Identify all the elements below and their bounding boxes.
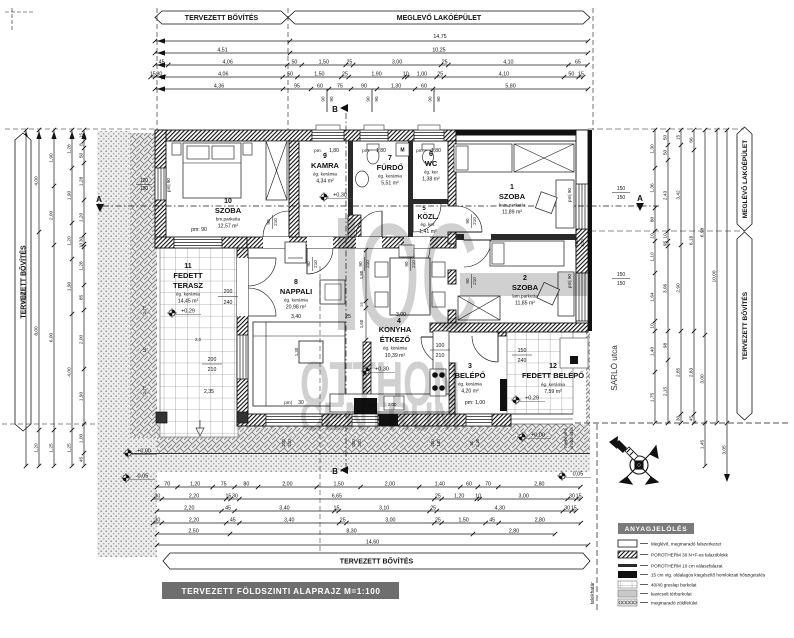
svg-text:30: 30: [569, 494, 575, 500]
svg-text:14,60: 14,60: [366, 540, 379, 546]
svg-text:2,80: 2,80: [509, 529, 519, 535]
svg-text:TERVEZETT BŐVÍTÉS: TERVEZETT BŐVÍTÉS: [185, 13, 259, 22]
svg-text:130: 130: [140, 186, 149, 192]
svg-text:10,00: 10,00: [20, 292, 26, 304]
svg-text:1,75: 1,75: [649, 393, 655, 403]
svg-text:CENTRUM: CENTRUM: [300, 395, 460, 439]
svg-text:1,90: 1,90: [78, 392, 84, 402]
svg-text:POROTHERM 30 N+F-es falazóblok: POROTHERM 30 N+F-es falazóblokk: [651, 553, 729, 558]
svg-text:60: 60: [317, 84, 323, 90]
svg-text:kavicsolt térburkolat: kavicsolt térburkolat: [651, 592, 692, 597]
svg-text:+0,29: +0,29: [525, 396, 539, 402]
svg-text:4,10: 4,10: [503, 60, 513, 66]
svg-text:1: 1: [510, 184, 514, 191]
svg-text:ANYAGJELÖLÉS: ANYAGJELÖLÉS: [625, 524, 688, 533]
svg-text:15: 15: [578, 72, 584, 78]
svg-text:ég. kerámia: ég. kerámia: [541, 382, 565, 387]
svg-text:ég. kerámia: ég. kerámia: [284, 298, 308, 303]
svg-text:1,28: 1,28: [78, 261, 84, 271]
svg-text:TERASZ: TERASZ: [173, 281, 203, 290]
svg-text:2,83: 2,83: [688, 368, 694, 378]
svg-text:+0,00: +0,00: [137, 449, 151, 455]
svg-text:vmiba adva: vmiba adva: [569, 427, 574, 449]
svg-text:50: 50: [568, 72, 574, 78]
svg-text:10: 10: [78, 243, 84, 249]
svg-text:1,20: 1,20: [66, 236, 72, 246]
svg-text:25: 25: [342, 72, 348, 78]
svg-text:3,40: 3,40: [284, 518, 294, 524]
svg-text:1,90: 1,90: [371, 72, 381, 78]
svg-text:FEDETT: FEDETT: [173, 271, 203, 280]
svg-text:25: 25: [340, 518, 346, 524]
svg-text:90: 90: [436, 96, 441, 102]
svg-text:A: A: [96, 195, 102, 204]
svg-text:140: 140: [436, 439, 441, 447]
svg-text:45: 45: [225, 506, 231, 512]
svg-text:65: 65: [575, 60, 581, 66]
svg-text:30: 30: [232, 494, 238, 500]
svg-text:-0,05: -0,05: [136, 474, 149, 480]
svg-text:15: 15: [225, 494, 231, 500]
svg-text:TERVEZETT FÖLDSZINTI ALAPRAJ: TERVEZETT FÖLDSZINTI ALAPRAJZ M=1:100: [182, 586, 381, 596]
svg-text:210: 210: [313, 260, 318, 268]
svg-text:2,20: 2,20: [189, 518, 199, 524]
svg-text:1,28: 1,28: [78, 177, 84, 187]
svg-text:60: 60: [469, 440, 474, 445]
svg-text:1,90: 1,90: [66, 282, 72, 292]
svg-text:B: B: [332, 467, 338, 476]
svg-text:NAPPALI: NAPPALI: [280, 287, 312, 296]
svg-text:1,28: 1,28: [66, 144, 72, 154]
svg-text:pm: 1,00: pm: 1,00: [465, 400, 485, 406]
svg-text:meglévő-5: meglévő-5: [563, 428, 568, 448]
svg-text:50: 50: [662, 135, 668, 141]
svg-text:0,05: 0,05: [573, 472, 584, 478]
svg-text:9: 9: [323, 153, 327, 160]
svg-text:2,80: 2,80: [534, 482, 544, 488]
svg-text:3,00: 3,00: [699, 374, 705, 384]
svg-text:80: 80: [243, 482, 249, 488]
svg-text:1,80: 1,80: [329, 148, 339, 154]
svg-text:210: 210: [273, 218, 278, 226]
svg-text:25: 25: [435, 494, 441, 500]
svg-text:90: 90: [266, 219, 271, 225]
svg-text:1,25: 1,25: [66, 443, 72, 453]
svg-text:3,40: 3,40: [291, 314, 301, 320]
svg-text:95: 95: [294, 84, 300, 90]
svg-text:6,98: 6,98: [699, 228, 705, 238]
svg-text:2,20: 2,20: [184, 506, 194, 512]
svg-text:bm.parketta: bm.parketta: [216, 217, 241, 222]
svg-text:1,50: 1,50: [314, 72, 324, 78]
svg-text:ég. kerámia: ég. kerámia: [313, 172, 337, 177]
svg-text:1,20: 1,20: [190, 482, 200, 488]
svg-text:1,00: 1,00: [417, 72, 427, 78]
svg-text:pm| 90: pm| 90: [166, 178, 171, 192]
svg-text:+0,30: +0,30: [333, 193, 347, 199]
svg-text:3,40: 3,40: [279, 506, 289, 512]
svg-text:3,06: 3,06: [662, 284, 668, 294]
svg-text:2,00: 2,00: [385, 482, 395, 488]
svg-text:40/40 greslap burkolat: 40/40 greslap burkolat: [651, 583, 697, 588]
svg-text:30: 30: [564, 506, 570, 512]
svg-text:1,25: 1,25: [48, 443, 54, 453]
svg-text:80: 80: [649, 217, 655, 223]
svg-text:pm:: pm:: [314, 148, 322, 153]
svg-text:2,77: 2,77: [142, 305, 147, 314]
svg-text:10: 10: [403, 72, 409, 78]
svg-text:megmaradó zöldfelület: megmaradó zöldfelület: [651, 601, 698, 606]
svg-text:30: 30: [675, 416, 681, 422]
svg-text:15: 15: [571, 506, 577, 512]
svg-text:90: 90: [321, 96, 326, 102]
svg-text:200: 200: [224, 289, 233, 295]
svg-text:1,50: 1,50: [458, 518, 468, 524]
svg-text:1,20: 1,20: [78, 213, 84, 223]
svg-text:10: 10: [649, 233, 655, 239]
svg-text:M: M: [400, 148, 404, 154]
svg-text:11: 11: [184, 263, 192, 270]
svg-text:pm:: pm:: [416, 148, 424, 153]
svg-text:5,80: 5,80: [505, 84, 515, 90]
svg-text:1,40: 1,40: [475, 438, 480, 447]
svg-text:2,15: 2,15: [662, 387, 668, 397]
svg-text:3,10: 3,10: [379, 506, 389, 512]
svg-text:90: 90: [428, 96, 433, 102]
svg-text:210: 210: [208, 367, 217, 373]
svg-text:2,80: 2,80: [535, 518, 545, 524]
svg-text:telekhatár: telekhatár: [590, 582, 596, 604]
svg-text:45: 45: [489, 518, 495, 524]
svg-text:3,05: 3,05: [721, 445, 727, 455]
svg-text:4,36: 4,36: [214, 84, 224, 90]
svg-text:12: 12: [549, 363, 557, 370]
svg-text:2,77: 2,77: [142, 385, 147, 394]
svg-text:90: 90: [374, 96, 379, 102]
svg-text:1,50: 1,50: [333, 482, 343, 488]
svg-text:1,45: 1,45: [699, 440, 705, 450]
svg-text:2,00: 2,00: [78, 335, 84, 345]
svg-text:7: 7: [388, 155, 392, 162]
svg-text:85: 85: [78, 295, 84, 301]
svg-text:150: 150: [617, 281, 626, 287]
svg-text:1,40: 1,40: [649, 347, 655, 357]
svg-text:90: 90: [361, 84, 367, 90]
svg-text:15: 15: [576, 494, 582, 500]
svg-text:SZOBA: SZOBA: [215, 206, 242, 215]
svg-text:pm:: pm:: [362, 148, 370, 153]
svg-text:50: 50: [662, 150, 668, 156]
svg-text:15: 15: [675, 135, 681, 141]
svg-text:pm|: pm|: [284, 400, 292, 405]
svg-text:30: 30: [78, 237, 84, 243]
svg-text:ég. kerámia: ég. kerámia: [458, 382, 482, 387]
svg-text:+0,29: +0,29: [181, 309, 195, 315]
svg-text:98: 98: [662, 343, 668, 349]
svg-text:200: 200: [430, 439, 435, 447]
svg-text:2,43: 2,43: [662, 191, 668, 201]
svg-text:3,00: 3,00: [518, 494, 528, 500]
svg-text:15: 15: [78, 133, 84, 139]
svg-text:6,18: 6,18: [688, 236, 694, 246]
svg-text:SZOBA: SZOBA: [499, 192, 526, 201]
svg-text:25: 25: [435, 518, 441, 524]
svg-text:MEGLEVŐ LAKÓÉPÜLET: MEGLEVŐ LAKÓÉPÜLET: [397, 13, 482, 22]
svg-text:30: 30: [154, 494, 160, 500]
svg-text:70: 70: [164, 482, 170, 488]
svg-text:4,34 m²: 4,34 m²: [316, 179, 334, 185]
svg-text:10: 10: [649, 323, 655, 329]
svg-text:1,40: 1,40: [435, 482, 445, 488]
svg-text:1,30: 1,30: [294, 347, 299, 356]
svg-text:8,30: 8,30: [346, 529, 356, 535]
svg-text:15: 15: [334, 506, 340, 512]
svg-text:45: 45: [688, 416, 694, 422]
svg-text:12,57 m²: 12,57 m²: [218, 224, 239, 230]
svg-text:10: 10: [142, 347, 147, 352]
svg-text:1,90: 1,90: [66, 191, 72, 201]
svg-text:25: 25: [346, 60, 352, 66]
svg-text:2,20: 2,20: [189, 494, 199, 500]
svg-text:150: 150: [617, 186, 626, 192]
svg-text:10: 10: [224, 198, 232, 205]
svg-text:1,80: 1,80: [376, 148, 386, 154]
svg-text:ég. ker: ég. ker: [424, 170, 439, 175]
svg-text:4,06: 4,06: [218, 72, 228, 78]
svg-text:240: 240: [518, 358, 527, 364]
svg-text:WC: WC: [425, 159, 438, 168]
svg-text:3,00: 3,00: [385, 518, 395, 524]
svg-text:2,50: 2,50: [188, 529, 198, 535]
svg-text:A: A: [637, 194, 643, 203]
svg-text:240: 240: [224, 300, 233, 306]
svg-text:3,00: 3,00: [392, 60, 402, 66]
svg-text:25: 25: [437, 72, 443, 78]
svg-text:ég. kerámia: ég. kerámia: [176, 292, 200, 297]
svg-text:90: 90: [366, 96, 371, 102]
svg-text:1,36: 1,36: [649, 183, 655, 193]
svg-text:4,00: 4,00: [33, 176, 39, 186]
svg-text:4,20 m²: 4,20 m²: [461, 389, 479, 395]
svg-text:200: 200: [208, 357, 217, 363]
svg-text:90: 90: [329, 96, 334, 102]
svg-text:11,89 m²: 11,89 m²: [502, 210, 522, 216]
svg-text:210: 210: [580, 239, 585, 247]
svg-text:90: 90: [306, 261, 311, 267]
svg-text:+0,00: +0,00: [531, 433, 545, 439]
svg-text:66: 66: [688, 137, 694, 143]
svg-text:4,10: 4,10: [499, 72, 509, 78]
svg-text:15 cm vtg. oldalagos kiegészít: 15 cm vtg. oldalagos kiegészítő homlokza…: [651, 573, 766, 578]
svg-text:25: 25: [442, 60, 448, 66]
svg-text:ég. kerámia: ég. kerámia: [378, 174, 402, 179]
svg-text:70: 70: [485, 482, 491, 488]
svg-text:14,75: 14,75: [433, 34, 446, 40]
svg-text:14,45 m²: 14,45 m²: [178, 299, 199, 305]
svg-text:8: 8: [294, 279, 298, 286]
svg-text:50: 50: [78, 153, 84, 159]
svg-text:3: 3: [468, 363, 472, 370]
svg-text:2,00: 2,00: [48, 211, 54, 221]
svg-text:10,25: 10,25: [432, 48, 445, 54]
svg-text:6,65: 6,65: [332, 494, 342, 500]
svg-text:1,64: 1,64: [649, 292, 655, 302]
svg-text:20,98 m²: 20,98 m²: [286, 305, 307, 311]
svg-text:50: 50: [291, 60, 297, 66]
svg-text:1,30: 1,30: [391, 84, 401, 90]
svg-text:200: 200: [281, 439, 286, 447]
svg-text:11,85 m²: 11,85 m²: [515, 301, 535, 307]
svg-text:60: 60: [421, 84, 427, 90]
svg-text:75: 75: [337, 84, 343, 90]
svg-text:1,00: 1,00: [78, 434, 84, 444]
svg-text:1,50: 1,50: [319, 60, 329, 66]
svg-text:2,90: 2,90: [675, 283, 681, 293]
svg-text:10,00: 10,00: [711, 270, 717, 282]
svg-text:150: 150: [617, 195, 626, 201]
svg-text:120: 120: [140, 178, 149, 184]
svg-text:45: 45: [230, 518, 236, 524]
svg-text:7,59 m²: 7,59 m²: [544, 389, 562, 395]
svg-text:1,10: 1,10: [649, 252, 655, 262]
svg-text:6,00: 6,00: [48, 333, 54, 343]
svg-text:4,30: 4,30: [495, 506, 505, 512]
svg-text:2,0: 2,0: [195, 337, 201, 342]
svg-text:1,80: 1,80: [431, 148, 441, 154]
svg-text:1,30: 1,30: [649, 144, 655, 154]
svg-text:1,38 m²: 1,38 m²: [422, 177, 440, 183]
svg-text:210: 210: [357, 439, 362, 447]
svg-text:200: 200: [351, 439, 356, 447]
svg-text:4,00: 4,00: [66, 367, 72, 377]
svg-text:4,06: 4,06: [222, 60, 232, 66]
svg-text:4,51: 4,51: [217, 48, 227, 54]
svg-text:pm: 90: pm: 90: [191, 227, 207, 233]
svg-text:2,00: 2,00: [282, 482, 292, 488]
svg-text:FÜRDŐ: FÜRDŐ: [377, 163, 404, 172]
svg-text:15: 15: [150, 72, 156, 78]
svg-text:pm| 90: pm| 90: [567, 188, 572, 202]
svg-text:10: 10: [475, 494, 481, 500]
svg-text:150: 150: [617, 272, 626, 278]
svg-text:25: 25: [430, 506, 436, 512]
svg-text:200: 200: [574, 239, 579, 247]
svg-text:SARLÓ utca: SARLÓ utca: [609, 345, 619, 391]
svg-text:1,20: 1,20: [33, 443, 39, 453]
svg-text:5,51 m²: 5,51 m²: [381, 181, 399, 187]
svg-text:FEDETT BELÉPŐ: FEDETT BELÉPŐ: [522, 371, 584, 380]
svg-text:Meglévő, megmaradó falszerkeze: Meglévő, megmaradó falszerkezet: [651, 542, 722, 547]
svg-text:150: 150: [518, 348, 527, 354]
svg-text:8,00: 8,00: [33, 326, 39, 336]
svg-text:3,42: 3,42: [675, 190, 681, 200]
svg-text:KAMRA: KAMRA: [311, 161, 339, 170]
svg-text:30: 30: [154, 518, 160, 524]
svg-text:60: 60: [466, 482, 472, 488]
svg-text:1,90: 1,90: [48, 153, 54, 163]
svg-text:2,35: 2,35: [204, 389, 214, 395]
svg-text:75: 75: [221, 482, 227, 488]
svg-text:B: B: [332, 105, 338, 114]
svg-text:TERVEZETT BŐVÍTÉS: TERVEZETT BŐVÍTÉS: [340, 557, 414, 566]
svg-text:bam.parketta: bam.parketta: [499, 203, 526, 208]
svg-text:210: 210: [287, 439, 292, 447]
svg-text:TERVEZETT BŐVÍTÉS: TERVEZETT BŐVÍTÉS: [740, 291, 749, 360]
svg-text:1,20: 1,20: [454, 494, 464, 500]
svg-text:POROTHERM 10 cm válaszfalazat: POROTHERM 10 cm válaszfalazat: [651, 564, 723, 569]
svg-text:8: 8: [78, 143, 84, 146]
svg-text:45: 45: [78, 457, 84, 463]
svg-text:10: 10: [662, 233, 668, 239]
svg-text:2,85: 2,85: [675, 368, 681, 378]
svg-text:MEGLÉVŐ LAKÓÉPÜLET: MEGLÉVŐ LAKÓÉPÜLET: [740, 140, 749, 218]
svg-text:95: 95: [662, 241, 668, 247]
